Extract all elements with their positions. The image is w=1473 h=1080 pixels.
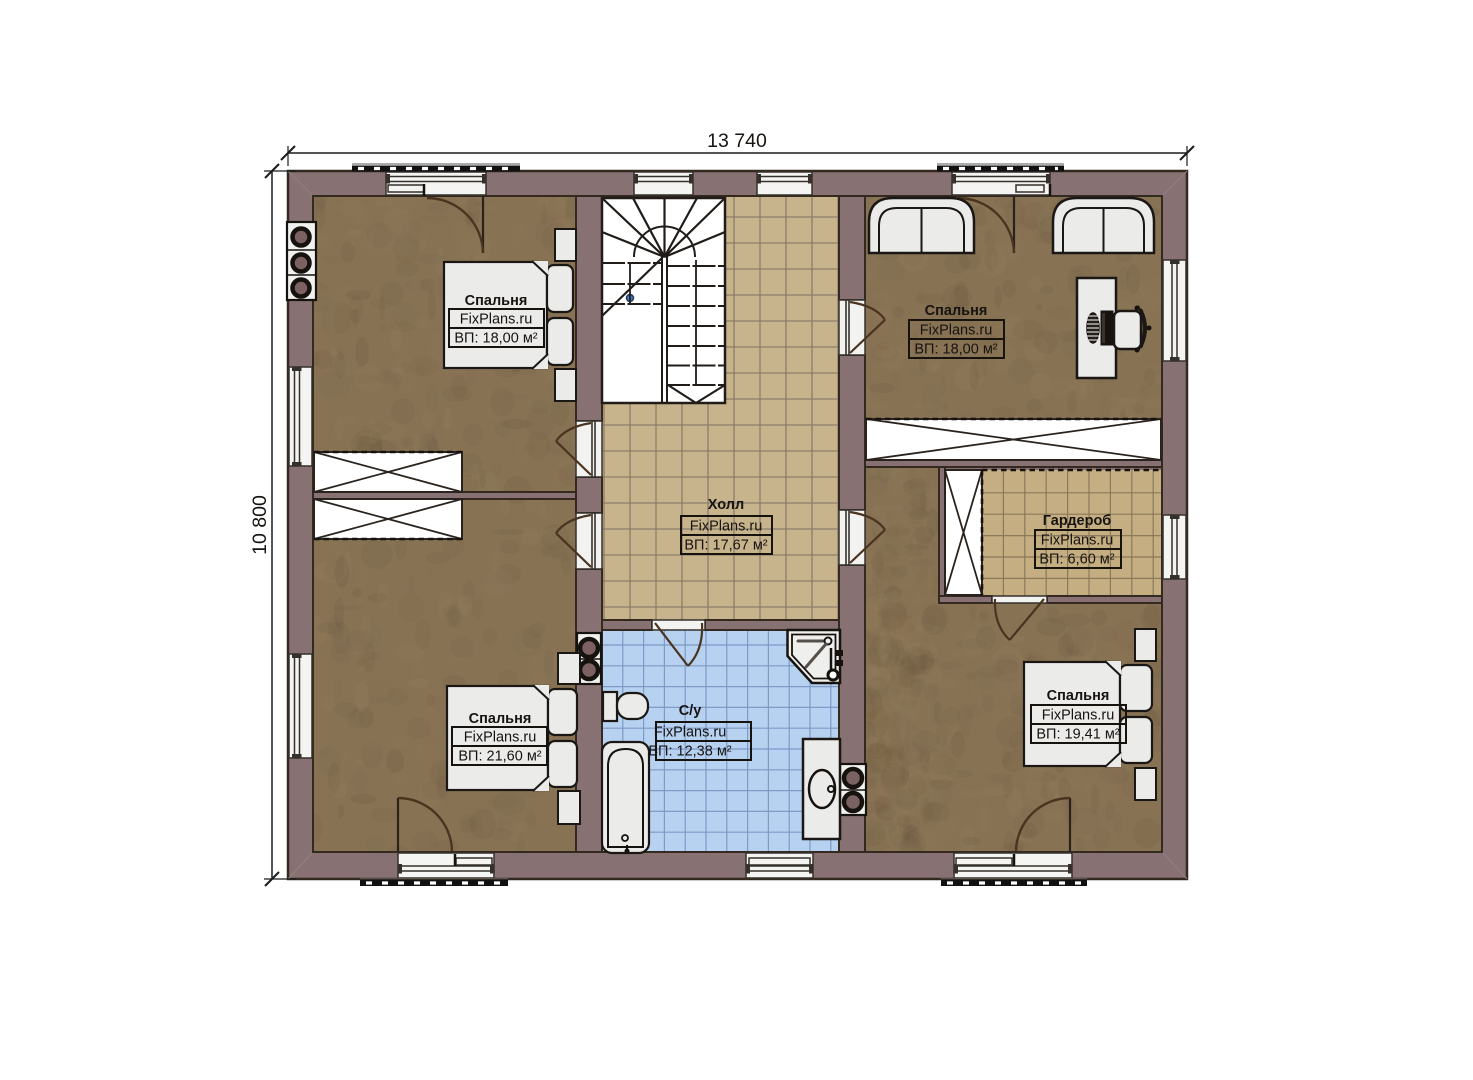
svg-text:FixPlans.ru: FixPlans.ru bbox=[1041, 533, 1114, 549]
svg-text:ВП: 6,60 м²: ВП: 6,60 м² bbox=[1039, 552, 1114, 568]
svg-text:ВП: 18,00 м²: ВП: 18,00 м² bbox=[914, 342, 997, 358]
svg-text:10 800: 10 800 bbox=[249, 495, 271, 555]
svg-text:ВП: 19,41 м²: ВП: 19,41 м² bbox=[1036, 727, 1119, 743]
svg-text:Спальня: Спальня bbox=[1047, 688, 1110, 704]
svg-text:FixPlans.ru: FixPlans.ru bbox=[460, 312, 533, 328]
svg-text:FixPlans.ru: FixPlans.ru bbox=[920, 323, 993, 339]
svg-text:ВП: 12,38 м²: ВП: 12,38 м² bbox=[648, 744, 731, 760]
svg-text:Спальня: Спальня bbox=[925, 303, 988, 319]
svg-text:ВП: 18,00 м²: ВП: 18,00 м² bbox=[454, 331, 537, 347]
svg-text:13 740: 13 740 bbox=[707, 130, 767, 152]
svg-text:Спальня: Спальня bbox=[469, 711, 532, 727]
svg-text:FixPlans.ru: FixPlans.ru bbox=[1042, 708, 1115, 724]
svg-text:Гардероб: Гардероб bbox=[1043, 513, 1112, 529]
svg-text:ВП: 21,60 м²: ВП: 21,60 м² bbox=[458, 749, 541, 765]
svg-text:FixPlans.ru: FixPlans.ru bbox=[464, 730, 537, 746]
svg-text:Спальня: Спальня bbox=[465, 293, 528, 309]
svg-text:С/у: С/у bbox=[679, 703, 702, 719]
svg-text:FixPlans.ru: FixPlans.ru bbox=[654, 725, 727, 741]
svg-text:FixPlans.ru: FixPlans.ru bbox=[690, 519, 763, 535]
svg-text:ВП: 17,67 м²: ВП: 17,67 м² bbox=[684, 538, 767, 554]
svg-text:Холл: Холл bbox=[708, 497, 744, 513]
